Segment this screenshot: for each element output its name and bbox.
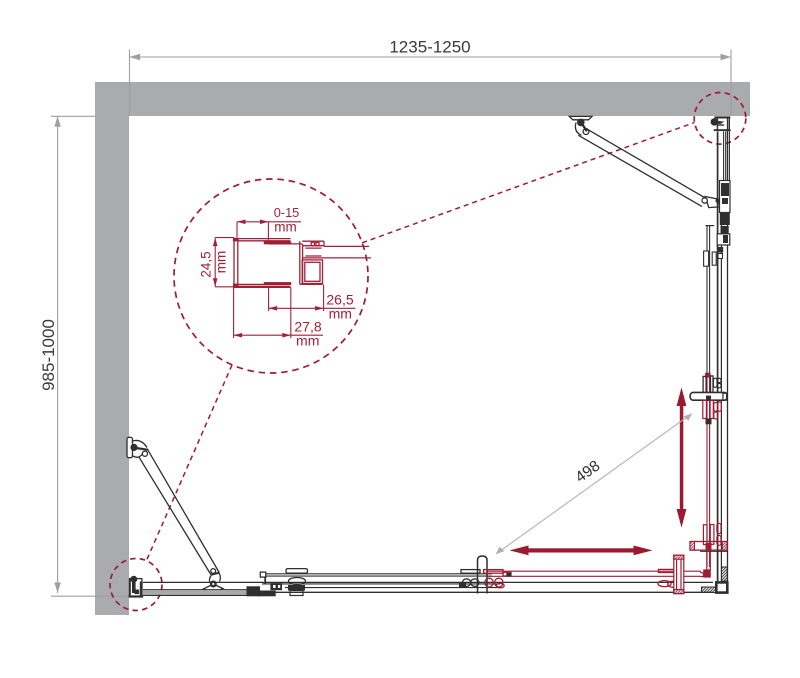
svg-text:mm: mm: [213, 251, 228, 274]
svg-text:985-1000: 985-1000: [39, 319, 58, 391]
svg-text:24,5: 24,5: [199, 251, 214, 277]
svg-text:mm: mm: [329, 306, 352, 322]
svg-text:1235-1250: 1235-1250: [389, 38, 470, 57]
svg-text:498: 498: [572, 457, 603, 486]
svg-text:mm: mm: [296, 333, 319, 349]
svg-text:0-15: 0-15: [274, 205, 300, 220]
svg-text:mm: mm: [274, 220, 297, 235]
